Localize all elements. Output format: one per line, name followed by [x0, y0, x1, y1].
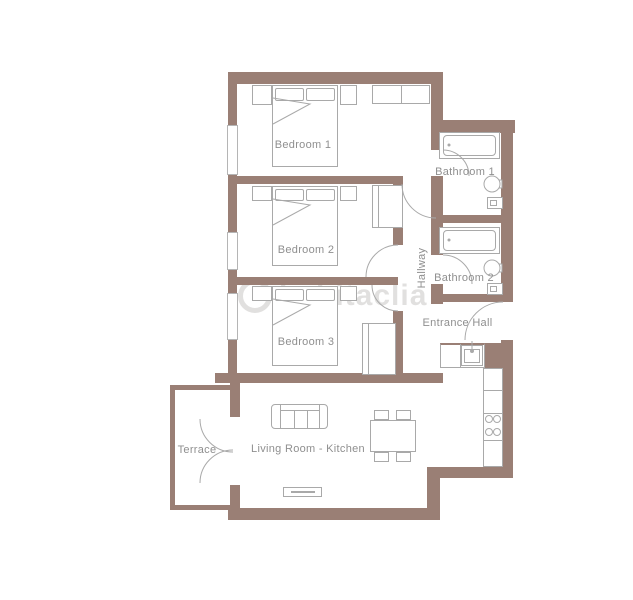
room-label-bedroom1: Bedroom 1 [253, 139, 353, 151]
room-label-bedroom2: Bedroom 2 [256, 244, 356, 256]
toilet-tank [490, 286, 497, 292]
pillow [275, 289, 304, 301]
nightstand [252, 186, 272, 201]
bathtub-basin [443, 230, 496, 251]
dining-table [370, 420, 416, 452]
wall-bedroom2-3-divider [228, 277, 398, 285]
window-bedroom2 [227, 232, 238, 270]
room-label-entrance-hall: Entrance Hall [410, 317, 505, 329]
room-label-hallway: Hallway [416, 238, 428, 298]
chair [396, 410, 411, 420]
room-label-bathroom2: Bathroom 2 [424, 272, 504, 284]
sofa-armrest [280, 405, 281, 428]
wall-bathroom2-bottom [431, 294, 503, 302]
bathroom-sink [484, 176, 500, 192]
counter-divider [484, 413, 502, 414]
wall-kitchen-corner-block [483, 343, 501, 368]
nightstand [340, 186, 357, 201]
pillow [306, 289, 335, 301]
room-label-terrace: Terrace [167, 444, 227, 456]
wardrobe-divider [378, 186, 379, 227]
wall-bedroom1-2-divider [228, 176, 403, 184]
pillow [306, 189, 335, 201]
sofa-backrest [281, 410, 319, 411]
sofa-cushion-divider [294, 411, 295, 428]
room-label-living-room-kitchen: Living Room - Kitchen [248, 443, 368, 455]
sofa-armrest [319, 405, 320, 428]
wall-bathroom-divider [431, 215, 503, 223]
wall-bottom [228, 508, 440, 520]
kitchen-counter-right [483, 368, 503, 467]
window-bedroom1 [227, 125, 238, 175]
chair [396, 452, 411, 462]
tv-stand-inner [291, 491, 315, 493]
pillow [275, 189, 304, 201]
nightstand [340, 286, 357, 301]
terrace-wall-bottom [170, 505, 235, 510]
pillow [275, 88, 304, 101]
sofa-cushion-divider [307, 411, 308, 428]
counter-divider [484, 440, 502, 441]
chair [374, 410, 389, 420]
wall-bedroom3-bottom [215, 373, 443, 383]
window-bedroom3 [227, 293, 238, 340]
wall-top [228, 72, 443, 84]
chair [374, 452, 389, 462]
wall-bottom-right-step-horizontal [427, 467, 513, 478]
toilet-tank [490, 200, 497, 206]
bathtub-basin [443, 135, 496, 156]
counter-divider [484, 390, 502, 391]
wardrobe-divider [401, 86, 402, 103]
nightstand [252, 85, 272, 105]
floor-plan: habitaclia [0, 0, 633, 600]
nightstand [252, 286, 272, 301]
pillow [306, 88, 335, 101]
room-label-bedroom3: Bedroom 3 [256, 336, 356, 348]
door-arc-bedroom2 [366, 245, 398, 277]
kitchen-sink-basin [464, 349, 480, 363]
nightstand [340, 85, 357, 105]
terrace-wall-top [170, 385, 235, 390]
room-label-bathroom1: Bathroom 1 [425, 166, 505, 178]
wardrobe-divider [368, 324, 369, 374]
wardrobe [372, 185, 403, 228]
